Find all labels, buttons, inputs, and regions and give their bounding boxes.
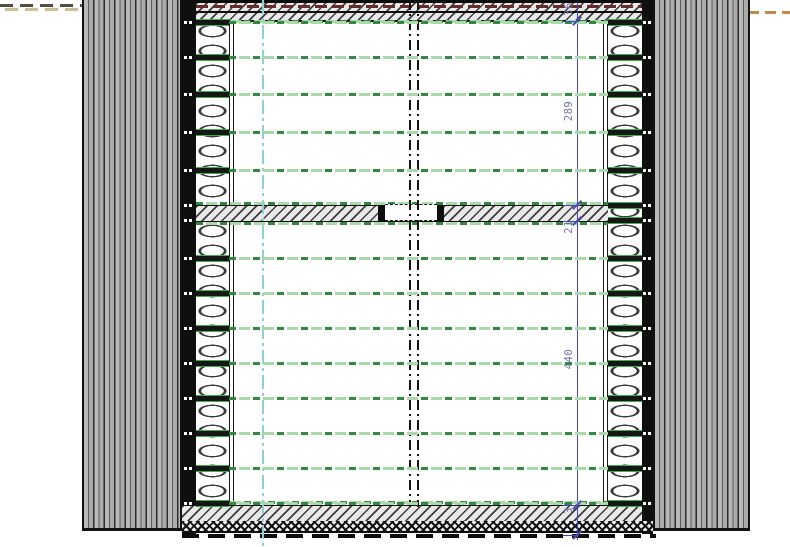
cleat-mark xyxy=(184,204,194,207)
cleat-mark xyxy=(184,397,194,400)
batten-bar xyxy=(608,167,642,174)
cleat-mark xyxy=(643,362,652,365)
cladding-left xyxy=(82,0,182,531)
batten-bar xyxy=(196,255,229,262)
batten-bar xyxy=(196,360,229,367)
batten-dashed-line xyxy=(229,257,608,260)
centerline-cyan xyxy=(262,0,264,547)
cleat-mark xyxy=(643,327,652,330)
batten-dashed-line xyxy=(229,432,608,435)
sill-crosshatch-band xyxy=(182,521,653,533)
dimension-line xyxy=(577,2,578,540)
cleat-mark xyxy=(643,131,652,134)
terrain-dash-left-dark xyxy=(0,4,82,7)
ground-dashed-line xyxy=(182,534,656,538)
batten-bar xyxy=(608,500,642,507)
cleat-mark xyxy=(643,21,652,24)
drawing-canvas[interactable]: 36 289 21 440 32 xyxy=(0,0,790,547)
batten-bar xyxy=(608,360,642,367)
axis-dash-right xyxy=(417,0,419,507)
batten-dashed-line xyxy=(229,292,608,295)
terrain-dash-right xyxy=(748,11,790,14)
beam-end-cap-right xyxy=(437,206,444,221)
batten-dashed-line xyxy=(229,169,608,172)
cladding-right xyxy=(653,0,750,531)
batten-bar xyxy=(608,129,642,136)
cleat-mark xyxy=(184,502,194,505)
batten-dashed-line xyxy=(229,362,608,365)
batten-bar xyxy=(196,129,229,136)
cleat-mark xyxy=(643,257,652,260)
batten-bar xyxy=(608,290,642,297)
batten-bar xyxy=(196,167,229,174)
cleat-mark xyxy=(643,397,652,400)
cleat-mark xyxy=(184,362,194,365)
batten-bar xyxy=(196,395,229,402)
cleat-mark xyxy=(643,292,652,295)
batten-dashed-line xyxy=(229,131,608,134)
batten-bar xyxy=(196,91,229,98)
cleat-mark xyxy=(184,169,194,172)
cleat-mark xyxy=(184,467,194,470)
cleat-mark xyxy=(184,257,194,260)
batten-bar xyxy=(196,325,229,332)
air-gap-band-left xyxy=(182,0,196,534)
batten-bar xyxy=(608,91,642,98)
batten-bar xyxy=(608,430,642,437)
batten-bar xyxy=(196,290,229,297)
batten-bar xyxy=(196,54,229,61)
cleat-mark xyxy=(184,292,194,295)
cleat-mark xyxy=(643,432,652,435)
batten-bar xyxy=(608,202,642,209)
cleat-mark xyxy=(184,131,194,134)
cleat-mark xyxy=(643,219,652,222)
cleat-mark xyxy=(643,93,652,96)
cleat-mark xyxy=(184,56,194,59)
cleat-mark xyxy=(184,432,194,435)
cleat-mark xyxy=(184,219,194,222)
cleat-mark xyxy=(643,56,652,59)
batten-dashed-line xyxy=(229,397,608,400)
batten-dashed-line xyxy=(229,502,608,505)
batten-bar xyxy=(608,19,642,26)
beam-opening-gap xyxy=(385,204,437,221)
dimension-label: 289 xyxy=(563,91,575,131)
batten-dashed-line xyxy=(229,21,608,24)
cleat-mark xyxy=(643,169,652,172)
axis-dash-left xyxy=(409,0,411,507)
cleat-mark xyxy=(643,204,652,207)
batten-bar xyxy=(196,19,229,26)
batten-bar xyxy=(196,465,229,472)
batten-bar xyxy=(608,395,642,402)
cleat-mark xyxy=(184,21,194,24)
batten-bar xyxy=(608,54,642,61)
batten-bar xyxy=(608,325,642,332)
cleat-mark xyxy=(184,93,194,96)
batten-bar xyxy=(608,465,642,472)
batten-bar xyxy=(196,430,229,437)
cleat-mark xyxy=(643,502,652,505)
cleat-mark xyxy=(184,327,194,330)
batten-dashed-line xyxy=(229,56,608,59)
beam-bottom-batten-line xyxy=(196,222,608,225)
batten-dashed-line xyxy=(229,93,608,96)
beam-end-cap-left xyxy=(378,206,385,221)
cleat-mark xyxy=(643,467,652,470)
batten-dashed-line xyxy=(229,327,608,330)
terrain-dash-left-tan xyxy=(5,8,82,11)
batten-dashed-line xyxy=(229,467,608,470)
beam-band xyxy=(196,205,608,222)
dimension-label: 21 xyxy=(563,207,575,247)
batten-bar xyxy=(196,500,229,507)
dimension-label: 440 xyxy=(563,339,575,379)
batten-bar xyxy=(608,217,642,224)
batten-bar xyxy=(608,255,642,262)
air-gap-band-right xyxy=(642,0,653,534)
